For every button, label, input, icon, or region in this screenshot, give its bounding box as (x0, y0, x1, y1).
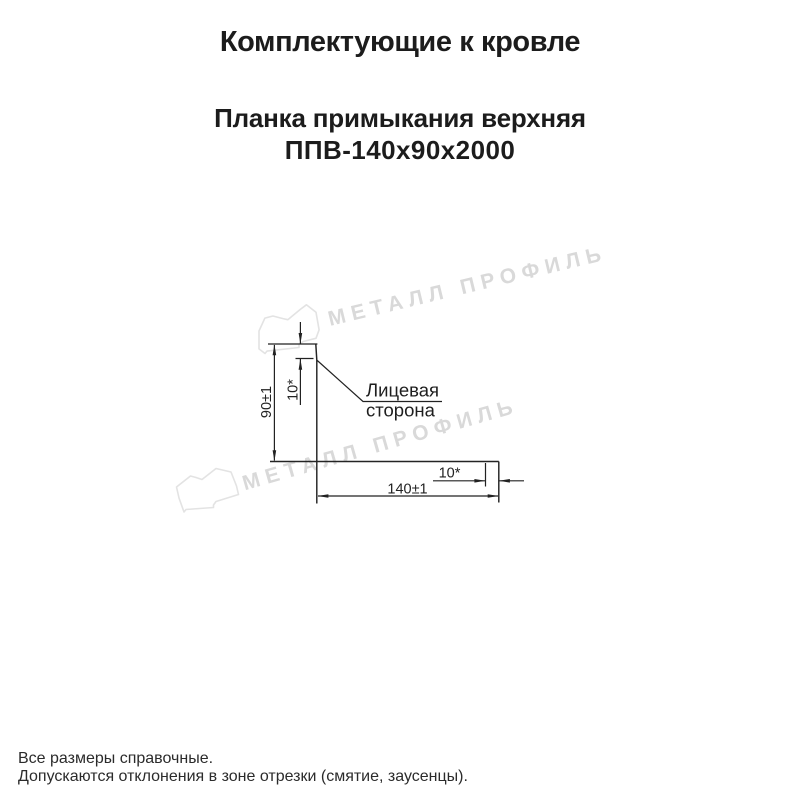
svg-text:10*: 10* (286, 379, 302, 401)
svg-text:10*: 10* (439, 466, 461, 482)
svg-text:90±1: 90±1 (259, 386, 275, 418)
svg-text:МЕТАЛЛ ПРОФИЛЬ: МЕТАЛЛ ПРОФИЛЬ (326, 242, 609, 331)
svg-text:сторона: сторона (366, 400, 436, 421)
svg-text:140±1: 140±1 (387, 482, 427, 498)
svg-text:Лицевая: Лицевая (366, 380, 439, 401)
